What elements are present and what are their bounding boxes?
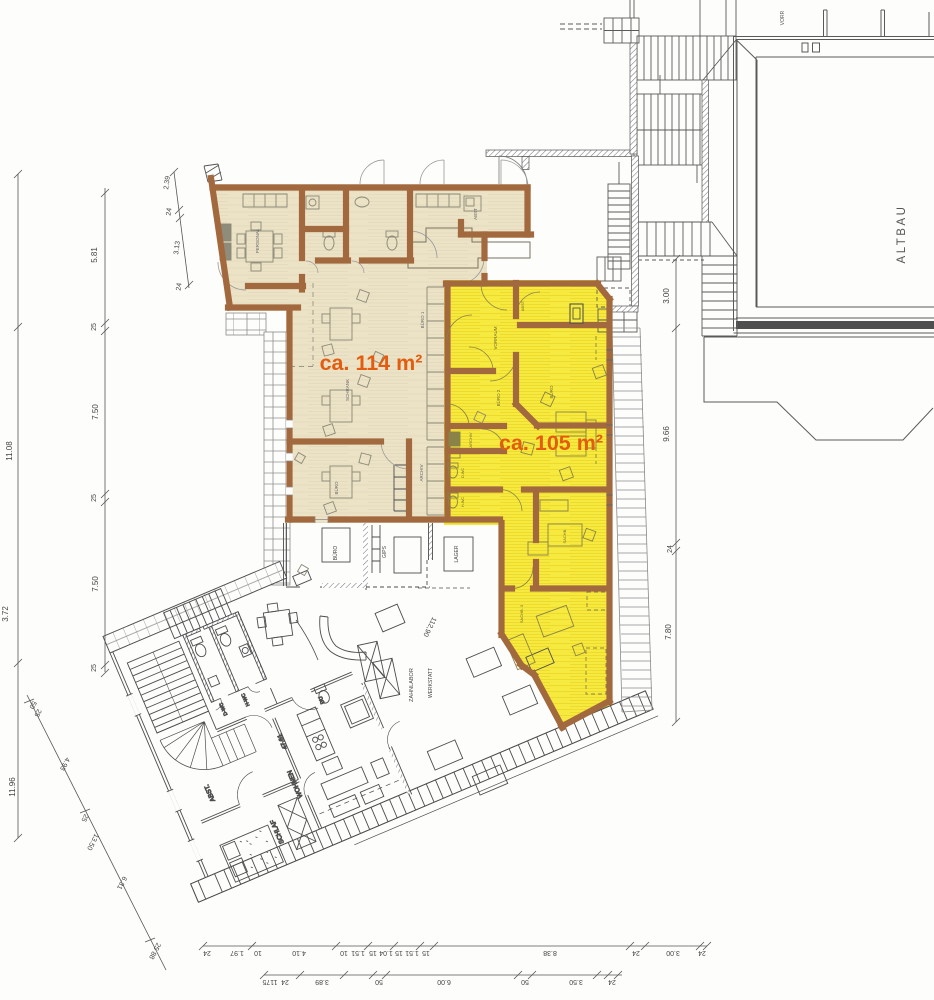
svg-text:11.96: 11.96 [8, 777, 17, 797]
svg-text:10: 10 [254, 949, 262, 956]
svg-text:24: 24 [667, 545, 674, 553]
svg-text:15: 15 [395, 949, 403, 956]
svg-text:ARCHIV: ARCHIV [468, 432, 473, 447]
svg-text:50: 50 [521, 978, 529, 985]
svg-text:LAGER: LAGER [454, 545, 460, 562]
svg-text:24: 24 [632, 949, 640, 956]
svg-text:24: 24 [281, 978, 289, 985]
svg-text:3.89: 3.89 [315, 978, 329, 985]
svg-text:10: 10 [340, 949, 348, 956]
svg-text:1.51: 1.51 [405, 949, 419, 956]
svg-text:ABST: ABST [473, 208, 478, 220]
svg-text:1175: 1175 [262, 978, 277, 985]
svg-text:24: 24 [608, 978, 616, 985]
svg-text:H-WC: H-WC [461, 497, 465, 508]
svg-text:BÜRO: BÜRO [333, 481, 339, 495]
svg-text:15: 15 [422, 949, 430, 956]
svg-text:25: 25 [91, 664, 98, 672]
svg-text:24: 24 [166, 207, 174, 216]
svg-text:3.00: 3.00 [666, 949, 680, 956]
svg-text:PERSONAL: PERSONAL [255, 228, 260, 253]
svg-text:ca. 114 m²: ca. 114 m² [320, 351, 423, 375]
svg-text:VORRAUM: VORRAUM [493, 326, 498, 349]
svg-text:BÜRO: BÜRO [332, 546, 339, 561]
svg-text:25: 25 [91, 494, 98, 502]
svg-text:ARCHIV: ARCHIV [419, 464, 424, 481]
svg-text:ZAHNLABOR: ZAHNLABOR [409, 668, 415, 702]
svg-text:SACHB.: SACHB. [562, 529, 567, 544]
svg-text:ALTBAU: ALTBAU [896, 205, 908, 264]
svg-text:25: 25 [91, 323, 98, 331]
svg-text:8.38: 8.38 [543, 949, 557, 956]
svg-text:6.00: 6.00 [437, 978, 451, 985]
svg-text:3.00: 3.00 [662, 288, 671, 304]
svg-text:3.72: 3.72 [1, 606, 10, 622]
svg-text:BÜRO 2: BÜRO 2 [495, 389, 501, 406]
svg-text:24: 24 [698, 949, 706, 956]
svg-text:11.08: 11.08 [5, 441, 14, 461]
svg-text:9.66: 9.66 [662, 426, 671, 442]
svg-text:1.51: 1.51 [351, 949, 365, 956]
svg-text:BÜRO 1: BÜRO 1 [419, 311, 425, 328]
svg-text:GIPS: GIPS [382, 545, 388, 558]
svg-text:SACHB. 3: SACHB. 3 [519, 604, 524, 623]
svg-text:WERKSTATT: WERKSTATT [428, 668, 434, 698]
svg-text:4.10: 4.10 [292, 949, 306, 956]
svg-text:7.80: 7.80 [664, 624, 673, 640]
svg-text:15: 15 [369, 949, 377, 956]
svg-text:ABST: ABST [520, 300, 525, 311]
svg-text:24: 24 [176, 282, 184, 291]
svg-text:7.50: 7.50 [91, 404, 100, 420]
svg-text:3.50: 3.50 [569, 978, 583, 985]
svg-text:BÜRO: BÜRO [548, 385, 554, 399]
svg-text:VORR: VORR [780, 10, 786, 25]
svg-text:7.50: 7.50 [91, 576, 100, 592]
svg-text:1.04: 1.04 [379, 949, 393, 956]
svg-text:ca. 105 m²: ca. 105 m² [499, 431, 603, 455]
svg-text:D-WC: D-WC [461, 468, 465, 479]
svg-text:24: 24 [203, 949, 211, 956]
svg-text:50: 50 [375, 978, 383, 985]
svg-text:5.81: 5.81 [90, 247, 99, 263]
svg-text:SCHRANK: SCHRANK [345, 379, 350, 401]
svg-text:1.97: 1.97 [230, 949, 244, 956]
